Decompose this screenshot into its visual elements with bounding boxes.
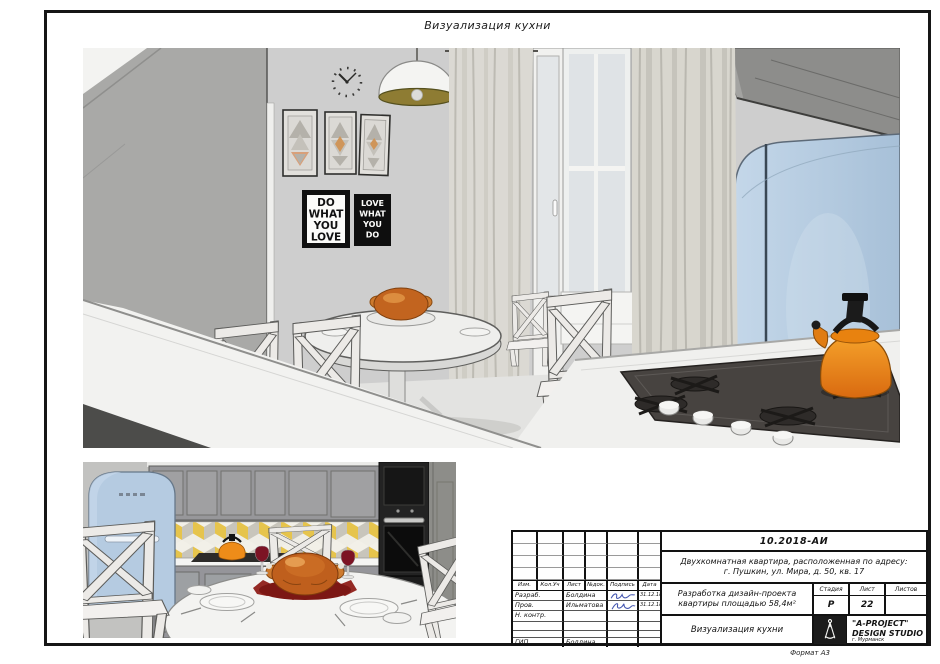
list-header: Лист	[850, 584, 886, 596]
revision-header-row: Изм. Кол.Уч Лист №док. Подпись Дата	[513, 580, 660, 591]
sign-date	[639, 622, 660, 631]
studio-logo-block: "A-PROJECT" DESIGN STUDIO г. Мурманск	[814, 616, 926, 644]
art-frame-1	[283, 110, 317, 176]
person-name	[564, 611, 608, 622]
personnel-table: Разраб. Болдина 31.12.18 Пров. Ильматова…	[513, 591, 660, 647]
sign-date	[639, 638, 660, 647]
revision-cell	[538, 544, 564, 556]
revision-cell	[608, 568, 639, 580]
role-label: Н. контр.	[513, 611, 564, 622]
revision-cell	[586, 556, 608, 568]
studio-name: "A-PROJECT"	[852, 619, 926, 628]
poster-right-line-3: YOU	[362, 220, 382, 229]
sign-date	[639, 611, 660, 622]
art-frame-2	[325, 112, 356, 174]
person-name: Болдина	[564, 591, 608, 601]
curtain-right	[632, 48, 738, 396]
render-kitchen-main: DO WHAT YOU LOVE LOVE WHAT YOU DO	[83, 48, 900, 448]
revision-cell	[538, 532, 564, 544]
compass-icon	[814, 616, 847, 644]
header-izm: Изм.	[513, 581, 538, 590]
revision-table	[513, 532, 660, 580]
poster-left-line-3: YOU	[313, 220, 339, 232]
project-name-line1: Разработка дизайн-проекта	[678, 589, 796, 599]
role-label	[513, 622, 564, 631]
object-address: Двухкомнатная квартира, расположенная по…	[662, 552, 926, 584]
person-name	[564, 631, 608, 638]
role-label: Пров.	[513, 601, 564, 611]
title-block-right: 10.2018-АИ Двухкомнатная квартира, распо…	[662, 532, 926, 644]
oven-handle	[384, 518, 424, 523]
role-label: Разраб.	[513, 591, 564, 601]
poster-do-what-you-love: DO WHAT YOU LOVE	[302, 190, 350, 248]
revision-cell	[513, 556, 538, 568]
person-name: Ильматова	[564, 601, 608, 611]
studio-city: г. Мурманск	[852, 638, 926, 644]
revision-cell	[639, 544, 660, 556]
revision-cell	[564, 556, 586, 568]
signature-empty	[608, 638, 639, 647]
revision-cell	[586, 568, 608, 580]
upper-cabinets	[147, 462, 383, 522]
object-address-line2: г. Пушкин, ул. Мира, д. 50, кв. 17	[724, 567, 865, 577]
person-name: Болдина	[564, 638, 608, 647]
listov-header: Листов	[886, 584, 926, 596]
signature-empty	[608, 631, 639, 638]
triangle-art-frames	[283, 110, 390, 176]
revision-cell	[639, 532, 660, 544]
sheet-title: Визуализация кухни	[44, 19, 931, 32]
project-name: Разработка дизайн-проекта квартиры площа…	[662, 584, 814, 615]
sign-date: 31.12.18	[639, 591, 660, 601]
stage-value: Р	[814, 596, 850, 615]
revision-cell	[513, 532, 538, 544]
revision-cell	[608, 544, 639, 556]
place-setting	[460, 328, 490, 336]
person-name	[564, 622, 608, 631]
signature-empty	[608, 611, 639, 622]
role-label: ГИП	[513, 638, 564, 647]
format-label: Формат А3	[745, 649, 875, 657]
poster-right-line-2: WHAT	[359, 210, 386, 219]
poster-love-what-you-do: LOVE WHAT YOU DO	[354, 194, 391, 246]
poster-left-line-1: DO	[317, 197, 335, 209]
revision-cell	[513, 568, 538, 580]
render-kitchen-secondary	[83, 462, 456, 638]
listov-value	[886, 596, 926, 615]
sign-date: 31.12.18	[639, 601, 660, 611]
poster-left-line-2: WHAT	[309, 209, 345, 221]
header-podpis: Подпись	[608, 581, 639, 590]
document-number: 10.2018-АИ	[662, 532, 926, 552]
drawing-title: Визуализация кухни	[662, 616, 814, 644]
kitchen-main-illustration: DO WHAT YOU LOVE LOVE WHAT YOU DO	[83, 48, 900, 448]
studio-info: "A-PROJECT" DESIGN STUDIO г. Мурманск	[847, 616, 926, 644]
poster-left-line-4: LOVE	[311, 232, 341, 244]
signature	[608, 601, 639, 611]
poster-right-line-4: DO	[366, 231, 380, 240]
title-block-left-table: Изм. Кол.Уч Лист №док. Подпись Дата Разр…	[513, 532, 662, 644]
title-block: Изм. Кол.Уч Лист №док. Подпись Дата Разр…	[511, 530, 928, 646]
revision-cell	[564, 568, 586, 580]
revision-cell	[586, 544, 608, 556]
revision-cell	[639, 568, 660, 580]
project-name-line2: квартиры площадью 58,4м²	[678, 599, 796, 609]
revision-cell	[564, 532, 586, 544]
revision-cell	[608, 532, 639, 544]
stage-header: Стадия	[814, 584, 850, 596]
stage-list-table: Стадия Лист Листов Р 22	[814, 584, 926, 615]
kitchen-secondary-illustration	[83, 462, 456, 638]
header-kol-uch: Кол.Уч	[538, 581, 564, 590]
header-list: Лист	[564, 581, 586, 590]
sign-date	[639, 631, 660, 638]
revision-cell	[513, 544, 538, 556]
revision-cell	[538, 568, 564, 580]
header-n-dok: №док.	[586, 581, 608, 590]
list-value: 22	[850, 596, 886, 615]
revision-cell	[608, 556, 639, 568]
role-label	[513, 631, 564, 638]
object-address-line1: Двухкомнатная квартира, расположенная по…	[680, 557, 907, 567]
header-data: Дата	[639, 581, 660, 590]
revision-cell	[564, 544, 586, 556]
revision-cell	[639, 556, 660, 568]
revision-cell	[538, 556, 564, 568]
signature	[608, 591, 639, 601]
door-handle	[553, 200, 557, 216]
revision-cell	[586, 532, 608, 544]
art-frame-3	[359, 115, 390, 176]
poster-right-line-1: LOVE	[361, 199, 384, 208]
signature-empty	[608, 622, 639, 631]
